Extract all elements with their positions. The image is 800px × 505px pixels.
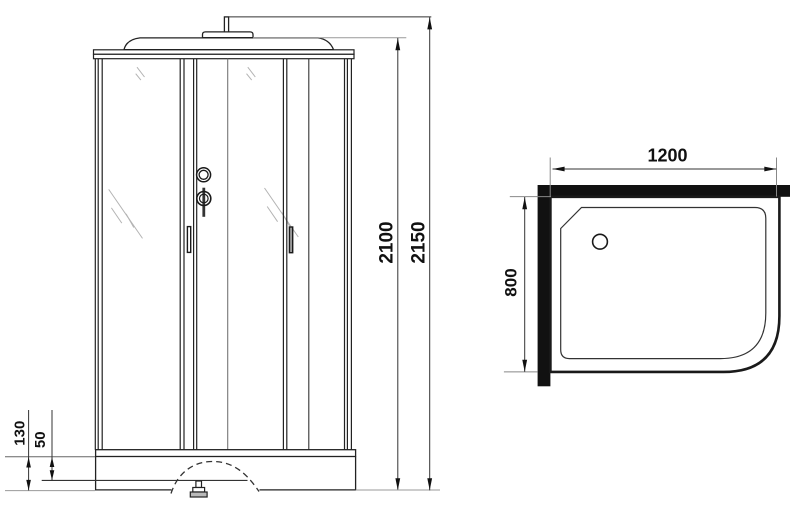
svg-text:1200: 1200 [647,145,687,165]
svg-text:2150: 2150 [408,221,429,263]
svg-text:130: 130 [12,421,29,446]
svg-text:2100: 2100 [376,221,397,263]
svg-text:800: 800 [502,268,521,296]
svg-text:50: 50 [32,431,49,448]
